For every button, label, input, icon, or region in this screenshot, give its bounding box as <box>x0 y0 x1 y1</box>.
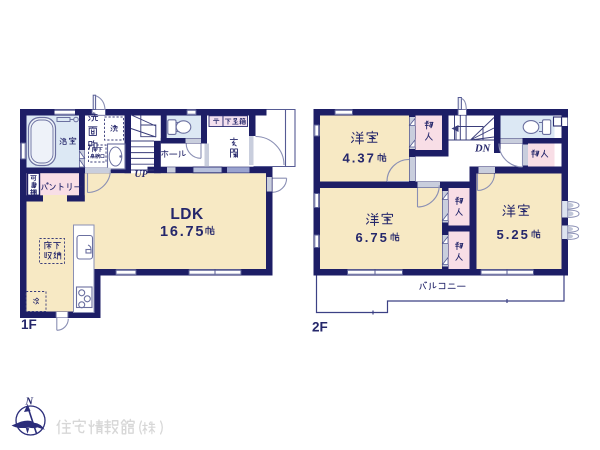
svg-text:DN: DN <box>474 143 491 154</box>
svg-text:2F: 2F <box>312 320 328 335</box>
svg-text:16.75: 16.75 <box>160 224 205 240</box>
svg-text:6.75: 6.75 <box>356 230 389 245</box>
svg-text:N: N <box>25 397 34 408</box>
svg-text:LDK: LDK <box>170 206 204 223</box>
svg-text:UP: UP <box>135 169 149 180</box>
svg-text:5.25: 5.25 <box>497 227 530 242</box>
svg-text:1F: 1F <box>21 317 37 332</box>
svg-text:4.37: 4.37 <box>343 151 376 166</box>
